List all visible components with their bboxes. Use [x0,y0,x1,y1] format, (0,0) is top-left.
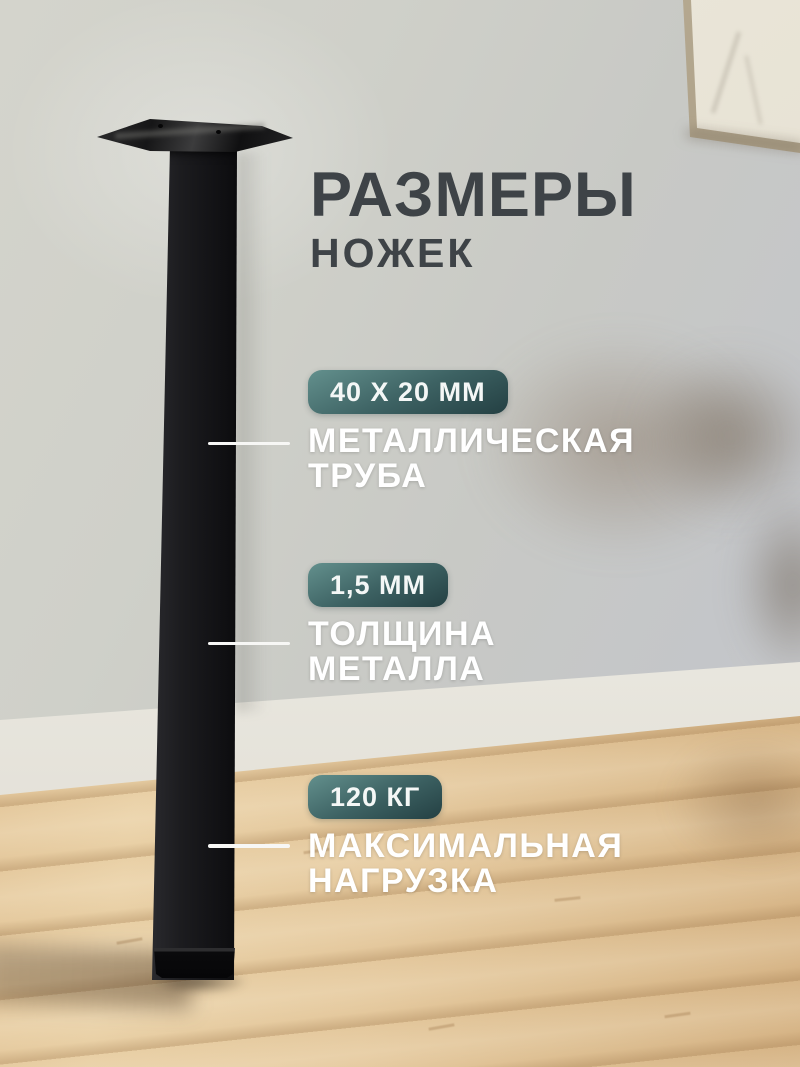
spec-label-metal-thickness: ТОЛЩИНА МЕТАЛЛА [308,617,728,687]
spec-label-tube-size: МЕТАЛЛИЧЕСКАЯ ТРУБА [308,424,728,494]
spec-tube-size: 40 X 20 ММ МЕТАЛЛИЧЕСКАЯ ТРУБА [308,370,728,494]
leg-foot-cap [151,948,237,978]
spec-label-line: ТОЛЩИНА [308,617,728,652]
leader-line-thickness [208,642,290,645]
spec-label-line: НАГРУЗКА [308,864,728,899]
page-title: РАЗМЕРЫ НОЖЕК [310,164,637,275]
spec-label-line: МЕТАЛЛИЧЕСКАЯ [308,424,728,459]
leg-wall-shadow [236,152,266,712]
screw-hole [216,130,221,134]
spec-label-line: ТРУБА [308,459,728,494]
title-line-1: РАЗМЕРЫ [310,164,637,227]
spec-badge-metal-thickness: 1,5 ММ [308,563,448,607]
product-infographic: РАЗМЕРЫ НОЖЕК 40 X 20 ММ МЕТАЛЛИЧЕСКАЯ Т… [0,0,800,1067]
spec-label-line: МАКСИМАЛЬНАЯ [308,829,728,864]
spec-max-load: 120 КГ МАКСИМАЛЬНАЯ НАГРУЗКА [308,775,728,899]
spec-label-max-load: МАКСИМАЛЬНАЯ НАГРУЗКА [308,829,728,899]
spec-metal-thickness: 1,5 ММ ТОЛЩИНА МЕТАЛЛА [308,563,728,687]
spec-badge-tube-size: 40 X 20 ММ [308,370,508,414]
leader-line-load [208,844,290,848]
screw-hole [158,124,163,128]
title-line-2: НОЖЕК [310,231,637,275]
spec-badge-max-load: 120 КГ [308,775,442,819]
spec-label-line: МЕТАЛЛА [308,652,728,687]
leader-line-tube [208,442,290,445]
